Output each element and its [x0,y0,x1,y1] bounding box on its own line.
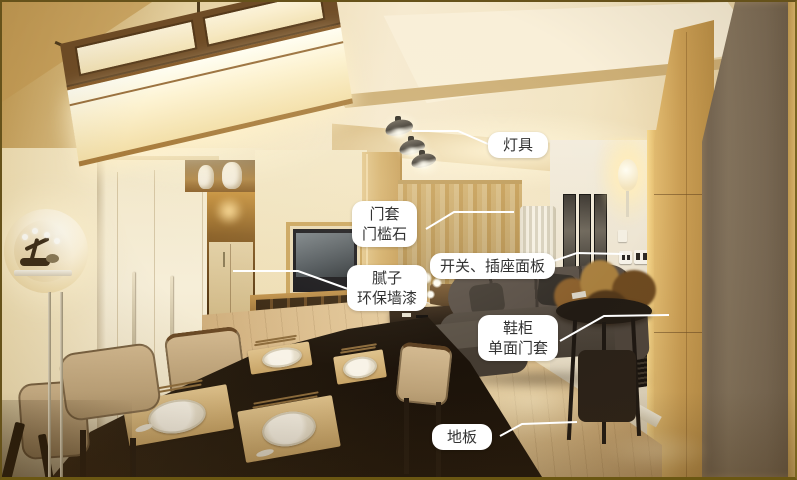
annotation-switch-panel: 开关、插座面板 [430,253,555,279]
annotation-switch-panel-text: 开关、插座面板 [440,256,545,276]
annotation-shoe-cabinet-line2: 单面门套 [488,338,548,358]
annotated-room-photo: 灯具 门套 门槛石 开关、插座面板 腻子 环保墙漆 鞋柜 单面门套 地板 [0,0,797,480]
annotation-putty-line1: 腻子 [357,268,417,288]
annotation-door-casing-line2: 门槛石 [362,224,407,244]
annotation-shoe-cabinet-line1: 鞋柜 [488,318,548,338]
annotation-putty-line2: 环保墙漆 [357,288,417,308]
annotation-shoe-cabinet: 鞋柜 单面门套 [478,315,558,361]
annotation-lighting: 灯具 [488,132,548,158]
annotation-lighting-text: 灯具 [503,135,533,155]
annotation-door-casing-line1: 门套 [362,204,407,224]
annotation-floor-text: 地板 [447,427,477,447]
annotation-floor: 地板 [432,424,492,450]
annotation-putty-paint: 腻子 环保墙漆 [347,265,427,311]
annotation-door-casing: 门套 门槛石 [352,201,417,247]
